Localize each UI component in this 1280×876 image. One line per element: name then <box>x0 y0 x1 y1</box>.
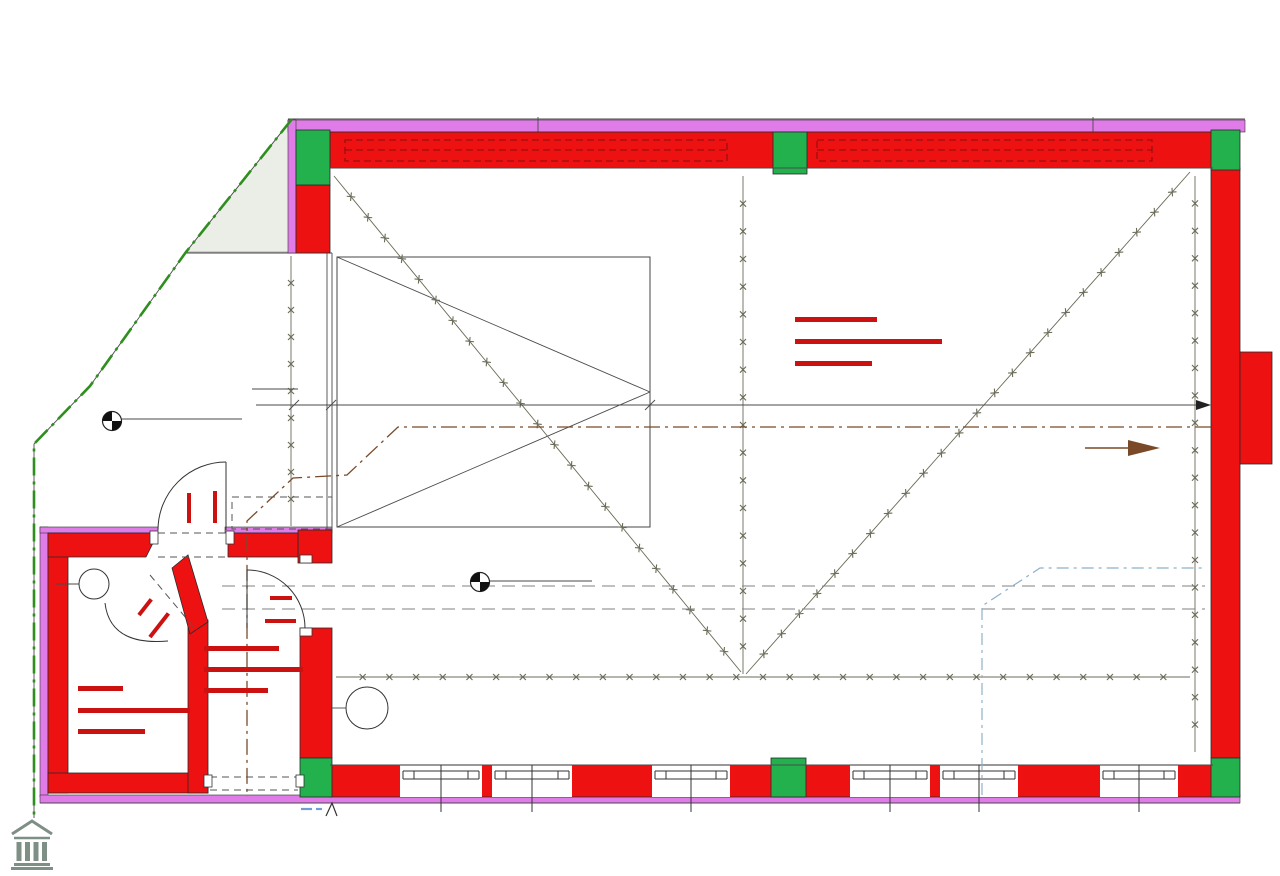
level-marker-floor-icon <box>471 573 593 592</box>
floor-plan-drawing <box>0 0 1280 876</box>
sewer-line <box>247 427 1211 797</box>
door-marker-tw1 <box>332 687 388 729</box>
dimension-lines <box>252 389 1211 425</box>
ramp-rectangle <box>337 257 650 527</box>
survey-mark <box>301 803 337 816</box>
drain-line <box>982 568 1205 795</box>
columns <box>296 130 1240 797</box>
dimension-arrow-icon <box>1196 400 1211 410</box>
sewer-flow-arrow-icon <box>1128 440 1160 456</box>
pradium-logo-icon <box>11 821 53 870</box>
survey-lines <box>291 172 1195 752</box>
floor-plan-page <box>0 0 1280 876</box>
level-marker-street-icon <box>103 412 243 431</box>
room-label-underlines <box>78 317 942 734</box>
door-symbols <box>105 462 312 787</box>
entrance-door-dims <box>187 491 217 523</box>
ar-door-dims <box>137 598 170 638</box>
